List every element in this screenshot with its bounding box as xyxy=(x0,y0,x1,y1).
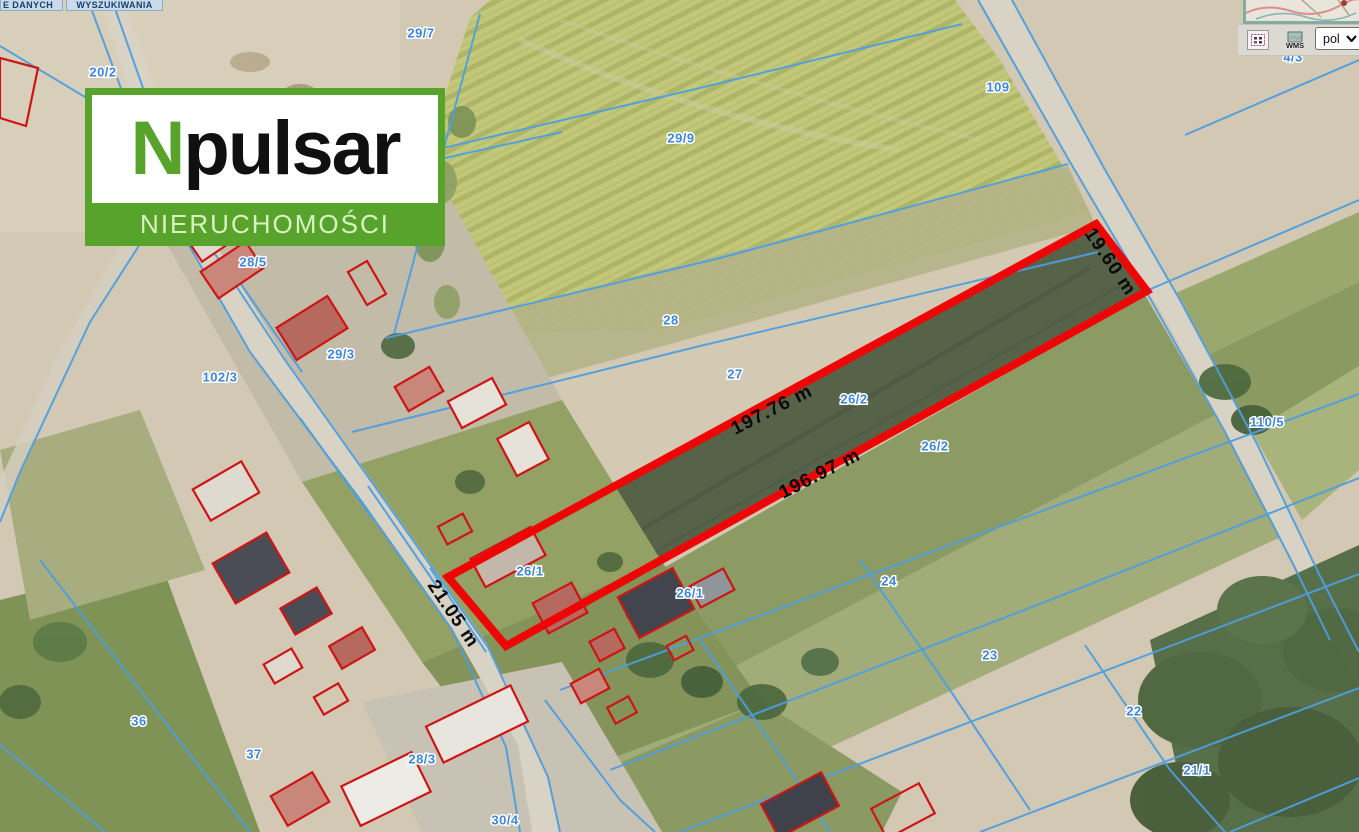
parcel-number-label: 28/5 xyxy=(239,255,266,270)
parcel-number-label: 26/1 xyxy=(676,586,703,601)
agency-logo: Npulsar NIERUCHOMOŚCI xyxy=(85,88,445,246)
parcel-number-label: 37 xyxy=(246,747,261,762)
chevron-down-icon xyxy=(1346,35,1357,42)
wms-button-label: WMS xyxy=(1286,42,1304,49)
minimap-content xyxy=(1246,0,1359,21)
parcel-number-label: 27 xyxy=(727,367,742,382)
logo-initial: N xyxy=(131,106,184,191)
parcel-number-label: 28 xyxy=(663,313,678,328)
language-select-value: pol xyxy=(1323,32,1340,46)
parcel-number-label: 110/5 xyxy=(1250,415,1284,430)
grid-table-button[interactable] xyxy=(1247,30,1269,50)
language-select[interactable]: pol xyxy=(1315,27,1359,50)
geoportal-app: { "tabs": { "items": [ {"label": "E DANY… xyxy=(0,0,1359,832)
parcel-number-label: 29/9 xyxy=(667,131,694,146)
grid-table-icon xyxy=(1251,34,1265,46)
parcel-number-label: 26/2 xyxy=(921,439,948,454)
parcel-number-label: 102/3 xyxy=(202,370,237,385)
parcel-number-label: 24 xyxy=(881,574,897,589)
parcel-number-label: 26/2 xyxy=(840,392,867,407)
tab-wyszukiwania[interactable]: WYSZUKIWANIA xyxy=(66,0,163,11)
parcel-number-label: 26/1 xyxy=(516,564,543,579)
logo-wordmark: Npulsar xyxy=(92,95,438,203)
logo-subtitle: NIERUCHOMOŚCI xyxy=(85,203,445,246)
parcel-number-label: 21/1 xyxy=(1183,763,1210,778)
parcel-number-label: 109 xyxy=(986,80,1009,95)
parcel-number-label: 36 xyxy=(131,714,146,729)
tab-danych[interactable]: E DANYCH xyxy=(0,0,63,11)
logo-name: pulsar xyxy=(183,106,399,191)
map-toolbar: WMS pol xyxy=(1238,24,1359,56)
parcel-number-label: 22 xyxy=(1126,704,1141,719)
parcel-number-label: 28/3 xyxy=(408,752,435,767)
wms-button[interactable]: WMS xyxy=(1280,26,1310,54)
parcel-number-label: 29/7 xyxy=(407,26,434,41)
overview-minimap[interactable] xyxy=(1243,0,1359,24)
parcel-number-label: 23 xyxy=(982,648,997,663)
parcel-number-label: 30/4 xyxy=(491,813,519,828)
parcel-number-label: 29/3 xyxy=(327,347,354,362)
parcel-number-label: 20/2 xyxy=(89,65,116,80)
